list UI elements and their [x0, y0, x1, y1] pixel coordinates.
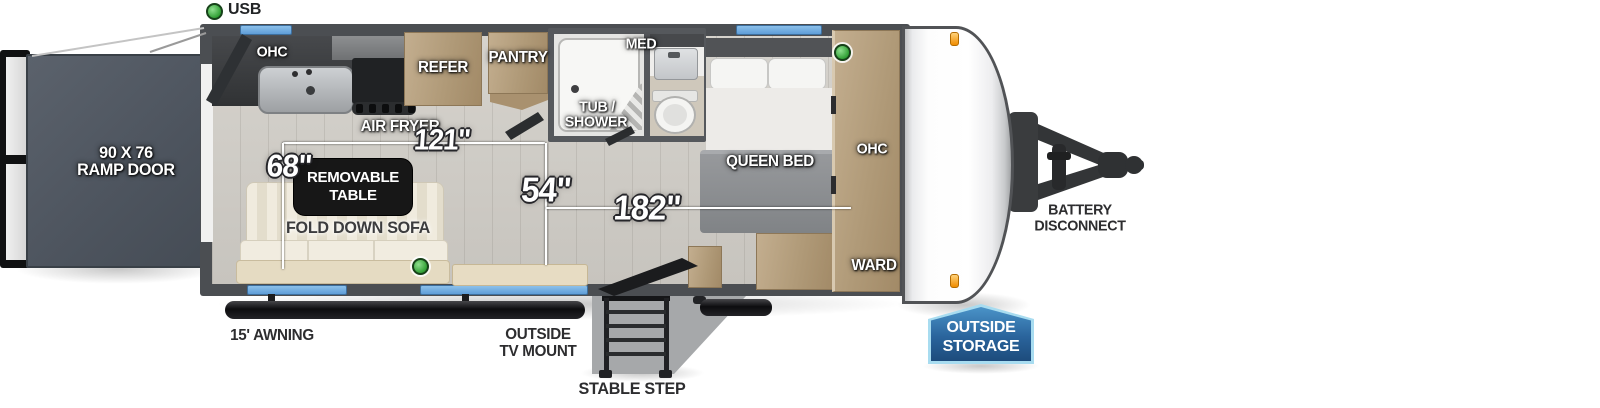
awning-label: 15' AWNING: [230, 327, 314, 345]
step-top-rail: [602, 296, 670, 301]
ohc-kitchen-label: OHC: [257, 44, 288, 61]
overlay-drawing: [0, 0, 1600, 408]
hitch-arm: [1038, 124, 1106, 166]
tub-shower-label-line2: SHOWER: [565, 114, 627, 131]
step-foot: [599, 370, 612, 378]
awning-roller-short: [700, 299, 772, 316]
queen-bed-label: QUEEN BED: [726, 153, 814, 171]
step-rung: [606, 310, 666, 314]
rv-floorplan: 90 X 76 RAMP DOOR: [0, 0, 1600, 408]
front-cap: [902, 26, 1014, 304]
ohc-bedroom-label: OHC: [857, 141, 888, 158]
pantry-base: [490, 94, 548, 110]
fold-down-sofa-label: FOLD DOWN SOFA: [286, 218, 430, 238]
battery-disconnect-label-line1: BATTERY: [1048, 202, 1112, 219]
entry-door-panel: [598, 258, 698, 296]
dim-54-label: 54": [520, 170, 572, 210]
hitch-coupler: [1098, 152, 1128, 178]
rear-door-panel: [206, 34, 252, 106]
refer-label: REFER: [418, 59, 468, 77]
step-rung: [606, 338, 666, 342]
tv-mount-label-line1: OUTSIDE: [505, 326, 571, 344]
dim-121-label: 121": [413, 123, 471, 157]
step-rail: [604, 298, 609, 372]
hitch-arm: [1038, 164, 1106, 200]
med-label: MED: [626, 36, 657, 53]
tv-mount-label-line2: TV MOUNT: [499, 343, 576, 361]
step-rung: [606, 352, 666, 356]
clearance-marker-icon: [950, 274, 959, 288]
step-rung: [606, 324, 666, 328]
step-foot: [659, 370, 672, 378]
step-rail: [664, 298, 669, 372]
stable-step-label: STABLE STEP: [579, 379, 686, 399]
tongue-jack-arm: [1047, 152, 1071, 160]
usb-legend-dot: [206, 3, 223, 20]
bath-door-panel: [505, 112, 544, 140]
outside-storage-label-line1: OUTSIDE: [928, 318, 1034, 337]
awning-roller: [225, 301, 585, 319]
usb-legend-label: USB: [228, 1, 261, 19]
pantry-label: PANTRY: [488, 49, 547, 67]
dim-182-label: 182": [612, 188, 682, 228]
dim-68-label: 68": [265, 149, 312, 185]
clearance-marker-icon: [950, 32, 959, 46]
battery-disconnect-label-line2: DISCONNECT: [1034, 218, 1125, 235]
outside-storage-label-line2: STORAGE: [928, 337, 1034, 356]
ward-label: WARD: [851, 257, 896, 275]
tongue-jack: [1052, 144, 1066, 190]
hitch-ball-icon: [1125, 156, 1143, 174]
